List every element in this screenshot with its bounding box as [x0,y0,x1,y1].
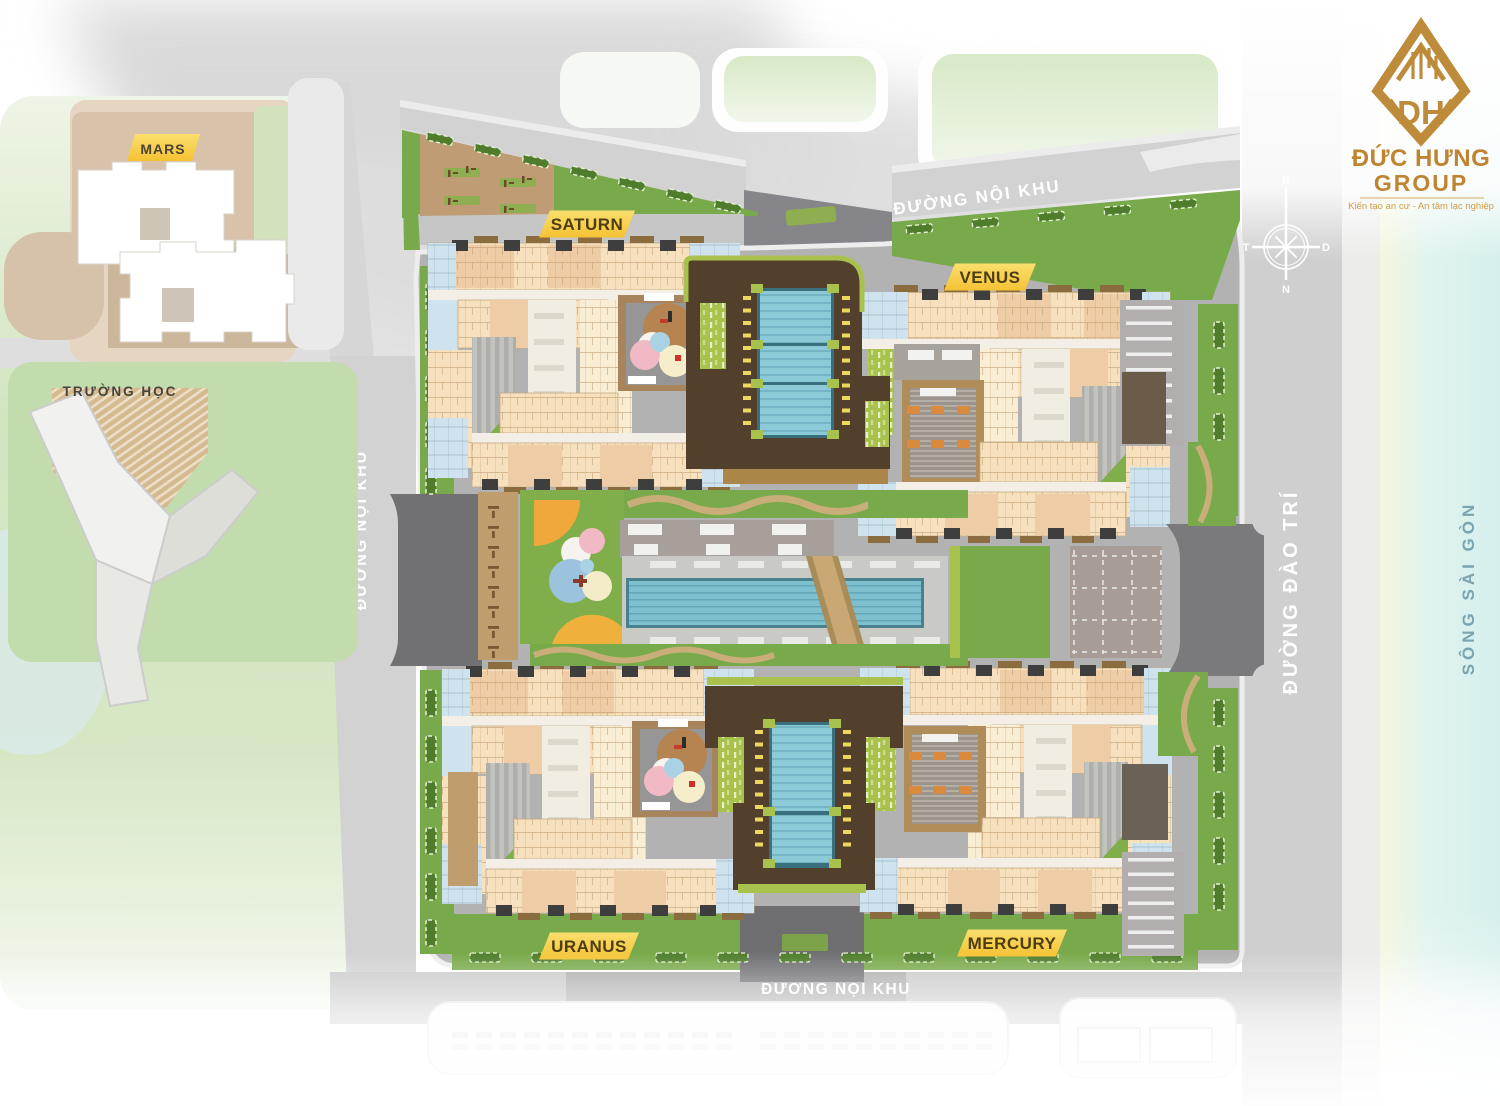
svg-text:MARS: MARS [140,141,185,157]
svg-text:N: N [1282,284,1290,296]
svg-text:ĐỨC HƯNG: ĐỨC HƯNG [1352,144,1490,172]
svg-text:T: T [1243,242,1250,254]
svg-text:D: D [1322,242,1330,254]
svg-text:GROUP: GROUP [1374,170,1468,196]
svg-text:MERCURY: MERCURY [968,934,1057,953]
svg-text:VENUS: VENUS [959,268,1020,287]
svg-text:SATURN: SATURN [551,215,624,234]
svg-text:Kiến tạo an cư - An tâm lạc ng: Kiến tạo an cư - An tâm lạc nghiệp [1348,201,1494,212]
svg-text:DH: DH [1397,94,1445,131]
svg-text:SÔNG SÀI GÒN: SÔNG SÀI GÒN [1459,501,1478,676]
svg-text:TRƯỜNG HỌC: TRƯỜNG HỌC [63,384,178,399]
svg-text:B: B [1282,175,1290,187]
svg-text:ĐƯỜNG ĐÀO TRÍ: ĐƯỜNG ĐÀO TRÍ [1278,490,1302,695]
